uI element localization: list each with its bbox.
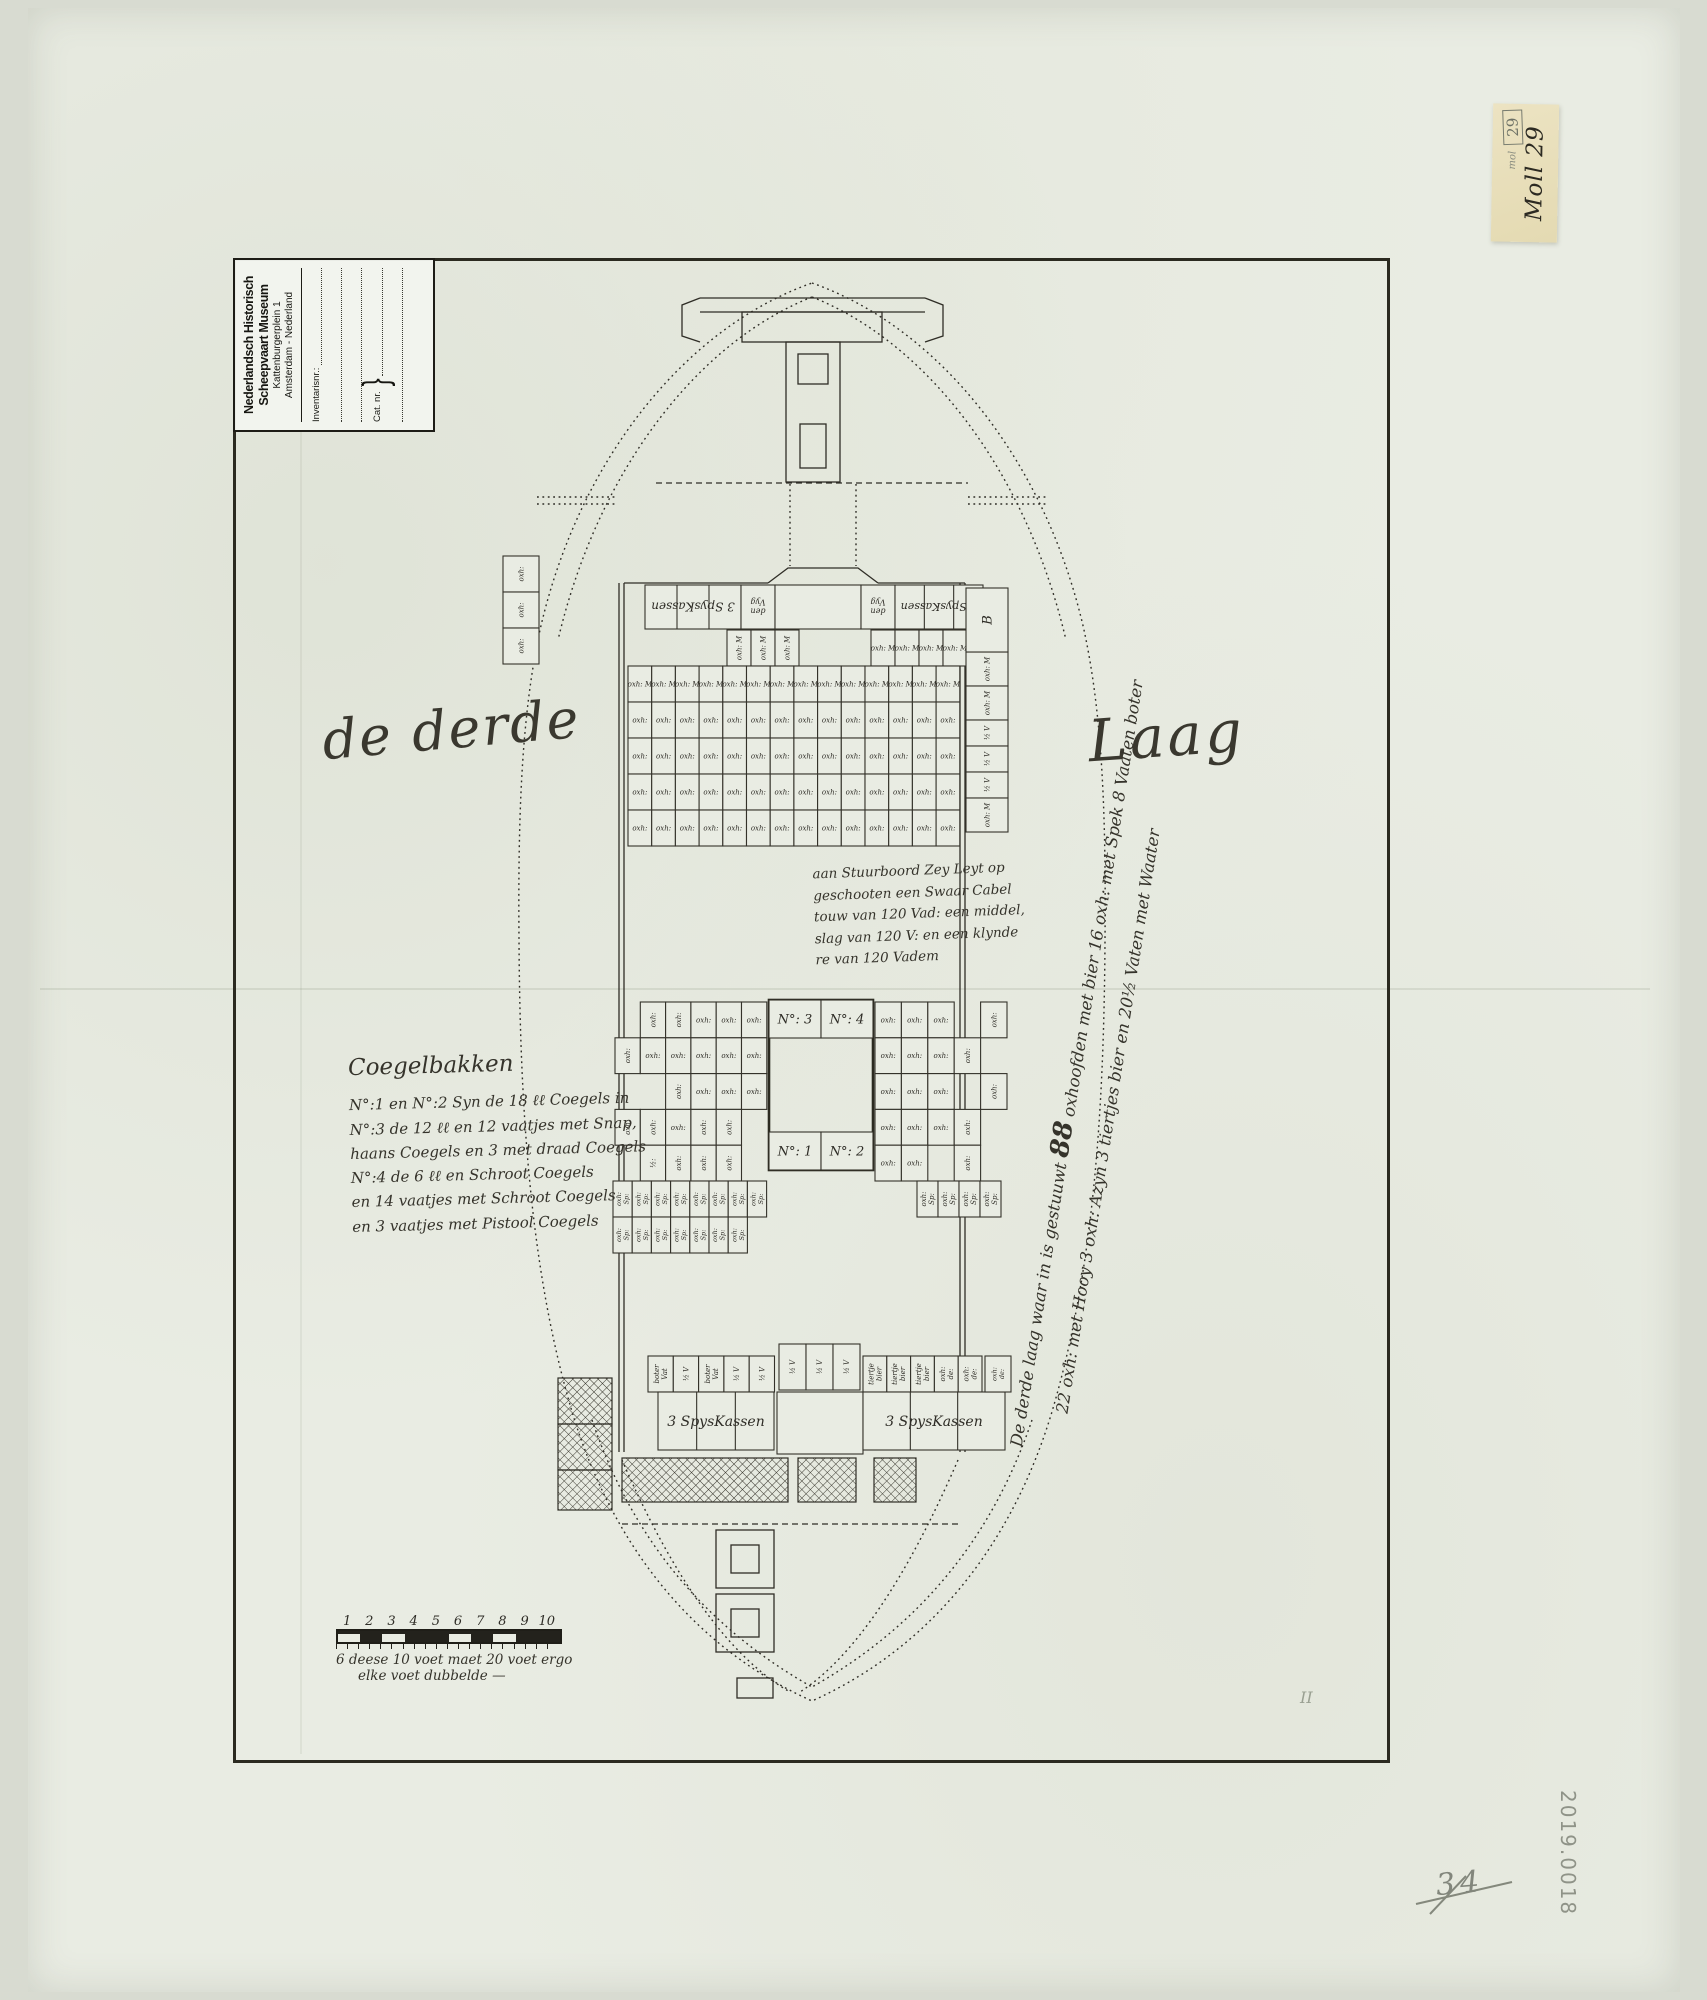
- cell-label: oxh:: [917, 717, 932, 725]
- cell-label: oxh:: [675, 1012, 683, 1027]
- cell-label: oxh:: [727, 753, 742, 761]
- side-line1-number: 88: [1045, 1119, 1080, 1159]
- scale-tick: [369, 1644, 380, 1649]
- scale-tick: [414, 1644, 425, 1649]
- stamp-dotted-line: [351, 268, 362, 422]
- pencil-tally-mark: II: [1300, 1688, 1313, 1707]
- note-boxed-number: 29: [1502, 109, 1523, 145]
- cell-label: ½ V: [984, 777, 992, 792]
- scale-tick: [491, 1644, 502, 1649]
- cell-label: oxh:: [518, 602, 526, 617]
- rudder-trunk: [742, 312, 882, 342]
- cell-label: oxh:Sp:: [920, 1191, 936, 1206]
- cell-label: oxh:: [747, 1016, 762, 1024]
- cell-label: oxh:: [822, 789, 837, 797]
- cell-label: oxh:: [703, 825, 718, 833]
- box-label: denVyg: [750, 598, 765, 616]
- scale-tick: [480, 1644, 491, 1649]
- cell-label: oxh:: [893, 717, 908, 725]
- cell-label: ½ V: [789, 1359, 797, 1374]
- cell-label: oxh:: [696, 1016, 711, 1024]
- cell-label: oxh:: [893, 825, 908, 833]
- cell-label: oxh:: [869, 789, 884, 797]
- stamp-catnr-label: Cat. nr.: [372, 391, 383, 422]
- scale-tick: [347, 1644, 358, 1649]
- cell-label: ½ V: [733, 1366, 741, 1381]
- cell-label: oxh:: [721, 1016, 736, 1024]
- cell-label: oxh:Sp:: [730, 1192, 746, 1206]
- cell-label: oxh:: [632, 789, 647, 797]
- cell-label: oxh:: [881, 1016, 896, 1024]
- cell-label: oxh:: [846, 753, 861, 761]
- cell-label: oxh:: [990, 1084, 998, 1099]
- cell-label: oxh: M: [919, 645, 944, 653]
- cell-label: oxh:: [725, 1156, 733, 1171]
- scale-ticks: [336, 1644, 558, 1649]
- cell-label: oxh:: [881, 1088, 896, 1096]
- scale-tick: [436, 1644, 447, 1649]
- cell-label: oxh:: [907, 1016, 922, 1024]
- hold-box: [775, 585, 861, 629]
- cell-label: oxh:: [703, 789, 718, 797]
- scale-segment: [538, 1631, 560, 1642]
- cell-label: oxh:: [775, 717, 790, 725]
- foremast-square-upper: [731, 1545, 759, 1573]
- cell-label: oxh: M: [984, 690, 992, 715]
- scale-segment: [471, 1631, 493, 1642]
- stamp-dotted-line: [372, 268, 383, 376]
- scale-number: 4: [403, 1614, 425, 1629]
- cell-label: oxh:: [798, 753, 813, 761]
- cell-label: oxh:: [822, 753, 837, 761]
- cell-label: oxh:: [846, 825, 861, 833]
- scale-number: 1: [336, 1614, 358, 1629]
- scale-number: 10: [536, 1614, 558, 1629]
- cell-label: oxh:: [518, 638, 526, 653]
- cell-label: oxh:: [751, 717, 766, 725]
- cell-label: oxh: M: [722, 681, 747, 689]
- box-label: 3 SpysKassen: [885, 1414, 982, 1430]
- museum-stamp: Nederlandsch Historisch Scheepvaart Muse…: [233, 258, 435, 432]
- cell-label: oxh:: [680, 825, 695, 833]
- cell-label: oxh: M: [746, 681, 771, 689]
- cell-label: oxh:: [798, 825, 813, 833]
- cell-label: oxh: M: [888, 681, 913, 689]
- side-grating-2: [558, 1424, 612, 1470]
- cell-label: oxh:: [727, 789, 742, 797]
- scale-tick: [458, 1644, 469, 1649]
- scale-number: 5: [425, 1614, 447, 1629]
- stamp-inventarisnr-label: Inventarisnr.:: [311, 368, 322, 422]
- cell-label: oxh:de:: [939, 1366, 955, 1381]
- cell-label: oxh:: [917, 753, 932, 761]
- stamp-brace: }: [368, 378, 386, 386]
- cell-label: oxh:: [940, 789, 955, 797]
- box-label: denVyg: [870, 598, 885, 616]
- scale-tick: [425, 1644, 436, 1649]
- cell-label: oxh:: [680, 717, 695, 725]
- cell-label: oxh:: [940, 717, 955, 725]
- mast-step-lower: [800, 424, 826, 468]
- cell-label: oxh:: [675, 1156, 683, 1171]
- cell-label: oxh:: [907, 1124, 922, 1132]
- scanned-sheet: oxh: Moxh: Moxh: Moxh: Moxh: Moxh: Moxh:…: [0, 0, 1707, 2000]
- cell-label: oxh:: [656, 753, 671, 761]
- cell-label: oxh:: [907, 1160, 922, 1168]
- cell-label: oxh:Sp:: [692, 1228, 708, 1242]
- scale-segment: [382, 1631, 404, 1642]
- cell-label: oxh:: [721, 1052, 736, 1060]
- scale-segment: [338, 1631, 360, 1642]
- cell-label: oxh: M: [841, 681, 866, 689]
- scale-tick: [391, 1644, 402, 1649]
- foremast-square-lower: [731, 1609, 759, 1637]
- box-label: N°: 1: [777, 1145, 813, 1160]
- cell-label: oxh:: [846, 717, 861, 725]
- cell-label: oxh:: [940, 825, 955, 833]
- note-ink-text: Moll 29: [1521, 104, 1549, 242]
- cell-label: oxh:: [917, 789, 932, 797]
- cell-label: oxh:: [964, 1156, 972, 1171]
- cell-label: oxh:: [751, 789, 766, 797]
- bow-grating-right: [874, 1458, 916, 1502]
- cell-label: oxh: M: [675, 681, 700, 689]
- cell-label: oxh:: [798, 789, 813, 797]
- cell-label: oxh:: [869, 825, 884, 833]
- cell-label: oxh:: [727, 825, 742, 833]
- cell-label: oxh:: [632, 825, 647, 833]
- stamp-museum-name-2: Scheepvaart Museum: [257, 268, 272, 422]
- cell-label: oxh:: [907, 1052, 922, 1060]
- cell-label: oxh:: [696, 1088, 711, 1096]
- cell-label: oxh:: [822, 717, 837, 725]
- box-label: N°: 4: [829, 1013, 865, 1028]
- scale-segment: [516, 1631, 538, 1642]
- cell-label: oxh: M: [794, 681, 819, 689]
- cell-label: oxh:: [869, 717, 884, 725]
- scale-caption-1: 6 deese 10 voet maet 20 voet ergo: [336, 1652, 596, 1668]
- cell-label: oxh:: [893, 753, 908, 761]
- scale-number: 6: [447, 1614, 469, 1629]
- cell-label: oxh:de:: [963, 1366, 979, 1381]
- cell-label: oxh:: [933, 1088, 948, 1096]
- cell-label: oxh:Sp:: [983, 1191, 999, 1206]
- cell-label: oxh:: [656, 789, 671, 797]
- cell-label: oxh:: [990, 1012, 998, 1027]
- cell-label: oxh:: [727, 717, 742, 725]
- scale-number: 8: [491, 1614, 513, 1629]
- scale-tick: [469, 1644, 480, 1649]
- cell-label: oxh:: [881, 1160, 896, 1168]
- mast-step-square: [798, 354, 828, 384]
- cell-label: ½ V: [816, 1359, 824, 1374]
- cell-label: oxh:: [846, 789, 861, 797]
- cell-label: oxh:: [933, 1124, 948, 1132]
- cell-label: oxh:: [747, 1088, 762, 1096]
- mizzen-mast-column: [786, 342, 840, 482]
- scale-tick: [525, 1644, 536, 1649]
- cell-label: oxh:Sp:: [673, 1192, 689, 1206]
- cell-label: oxh:: [775, 789, 790, 797]
- box-label: N°: 2: [829, 1145, 865, 1160]
- scale-segment: [360, 1631, 382, 1642]
- cell-label: oxh: M: [943, 645, 968, 653]
- cell-label: oxh:: [725, 1120, 733, 1135]
- cell-label: oxh:: [703, 717, 718, 725]
- cell-label: oxh:: [907, 1088, 922, 1096]
- cell-label: oxh: M: [817, 681, 842, 689]
- cell-label: oxh:: [656, 717, 671, 725]
- cell-label: oxh:: [933, 1052, 948, 1060]
- scale-number: 9: [514, 1614, 536, 1629]
- cell-label: oxh:Sp:: [711, 1192, 727, 1206]
- cell-label: oxh:: [649, 1012, 657, 1027]
- cell-label: oxh:: [893, 789, 908, 797]
- hold-box: [777, 1392, 863, 1454]
- scale-tick: [514, 1644, 525, 1649]
- cell-label: oxh:: [869, 753, 884, 761]
- mast-trapezoid: [768, 568, 878, 583]
- cell-label: oxh: M: [651, 681, 676, 689]
- scale-number: 2: [358, 1614, 380, 1629]
- stamp-divider: [301, 268, 302, 422]
- cell-label: oxh:: [675, 1084, 683, 1099]
- scale-segment: [405, 1631, 427, 1642]
- scale-tick: [447, 1644, 458, 1649]
- cell-label: oxh:: [881, 1052, 896, 1060]
- scale-segment: [449, 1631, 471, 1642]
- cell-label: oxh:Sp:: [711, 1228, 727, 1242]
- cell-label: oxh: M: [770, 681, 795, 689]
- cell-label: oxh: M: [871, 645, 896, 653]
- scale-number: 7: [469, 1614, 491, 1629]
- cell-label: oxh:: [917, 825, 932, 833]
- cell-label: oxh:: [964, 1048, 972, 1063]
- cell-label: oxh: M: [736, 635, 744, 660]
- cell-label: oxh: M: [760, 635, 768, 660]
- cell-label: oxh:: [656, 825, 671, 833]
- cell-label: oxh:: [700, 1156, 708, 1171]
- cell-label: oxh:: [632, 717, 647, 725]
- scale-tick: [380, 1644, 391, 1649]
- box-label: B: [981, 615, 996, 626]
- cell-label: oxh:: [703, 753, 718, 761]
- stem-block: [737, 1678, 773, 1698]
- bow-grating-small: [798, 1458, 856, 1502]
- scale-numbers: 12345678910: [336, 1614, 558, 1629]
- stamp-dotted-line: [392, 268, 403, 422]
- pencil-inventory-number: 2019.0018: [1556, 1790, 1580, 1916]
- cell-label: oxh:Sp:: [962, 1191, 978, 1206]
- scale-tick: [547, 1644, 558, 1649]
- scale-caption-2: elke voet dubbelde —: [336, 1668, 596, 1684]
- scale-ruler: [336, 1629, 562, 1644]
- scale-segment: [493, 1631, 515, 1642]
- cell-label: oxh: M: [699, 681, 724, 689]
- stamp-dotted-line: [311, 268, 322, 365]
- cell-label: oxh:Sp:: [692, 1192, 708, 1206]
- cell-label: ½ V: [984, 725, 992, 740]
- foremast-box-upper: [716, 1530, 774, 1588]
- cell-label: oxh: M: [865, 681, 890, 689]
- cell-label: ½ V: [682, 1366, 690, 1381]
- cell-label: oxh:: [775, 825, 790, 833]
- cell-label: oxh:: [798, 717, 813, 725]
- side-grating-3: [558, 1470, 612, 1510]
- scale-tick: [403, 1644, 414, 1649]
- foremast-box-lower: [716, 1594, 774, 1652]
- box-label: N°: 3: [777, 1013, 813, 1028]
- cell-label: oxh:Sp:: [673, 1228, 689, 1242]
- cell-label: oxh:: [775, 753, 790, 761]
- scale-tick: [536, 1644, 547, 1649]
- cell-label: oxh:: [518, 566, 526, 581]
- cell-label: ½ V: [758, 1366, 766, 1381]
- cell-label: oxh:: [940, 753, 955, 761]
- cell-label: oxh:: [680, 753, 695, 761]
- cell-label: oxh:: [721, 1088, 736, 1096]
- cell-label: oxh:: [632, 753, 647, 761]
- scale-segment: [427, 1631, 449, 1642]
- cell-label: oxh:: [680, 789, 695, 797]
- cell-label: oxh:: [671, 1124, 686, 1132]
- cell-label: oxh:Sp:: [941, 1191, 957, 1206]
- stamp-address: Kattenburgerplein 1: [272, 268, 285, 422]
- cell-label: oxh: M: [984, 656, 992, 681]
- stern-cap-left: [682, 298, 700, 342]
- cell-label: oxh: M: [936, 681, 961, 689]
- cell-label: oxh:: [881, 1124, 896, 1132]
- cell-label: ½ V: [984, 751, 992, 766]
- pencil-page-number: 34: [1435, 1864, 1486, 1903]
- scale-tick: [502, 1644, 513, 1649]
- stern-cap-right: [925, 298, 943, 342]
- scale-bar: 12345678910 6 deese 10 voet maet 20 voet…: [336, 1614, 596, 1684]
- cell-label: oxh:: [696, 1052, 711, 1060]
- cell-label: oxh:Sp:: [730, 1228, 746, 1242]
- cell-label: oxh: M: [984, 802, 992, 827]
- box-label: 3 SpysKassen: [667, 1414, 764, 1430]
- cell-label: oxh:: [822, 825, 837, 833]
- stamp-city: Amsterdam - Nederland: [284, 268, 297, 422]
- cell-label: oxh:: [700, 1120, 708, 1135]
- cell-label: oxh: M: [628, 681, 653, 689]
- cell-label: oxh:: [933, 1016, 948, 1024]
- cell-label: oxh:: [751, 825, 766, 833]
- cable-annotation: aan Stuurboord Zey Leyt op geschooten ee…: [812, 856, 1066, 973]
- bow-grating-wide: [622, 1458, 788, 1502]
- cell-label: oxh: M: [784, 635, 792, 660]
- cell-label: oxh:Sp:: [750, 1192, 766, 1206]
- cell-label: oxh: M: [912, 681, 937, 689]
- box-label: 3 SpysKassen: [651, 600, 735, 614]
- cell-label: ½ V: [843, 1359, 851, 1374]
- side-grating-1: [558, 1378, 612, 1424]
- coegelbakken-title: Coegelbakken: [348, 1042, 659, 1087]
- cell-label: oxh: M: [895, 645, 920, 653]
- note-pencil-word: mol: [1507, 151, 1518, 170]
- scale-tick: [336, 1644, 347, 1649]
- cell-label: oxh:: [751, 753, 766, 761]
- archival-sticky-note: mol 29 Moll 29: [1491, 103, 1559, 242]
- cell-label: oxh:: [747, 1052, 762, 1060]
- stamp-museum-name-1: Nederlandsch Historisch: [242, 268, 257, 422]
- stamp-dotted-line: [331, 268, 342, 422]
- cell-label: oxh:: [964, 1120, 972, 1135]
- cell-label: oxh:: [671, 1052, 686, 1060]
- coegelbakken-note: Coegelbakken N°:1 en N°:2 Syn de 18 ℓℓ C…: [348, 1042, 663, 1239]
- scale-tick: [358, 1644, 369, 1649]
- scale-number: 3: [380, 1614, 402, 1629]
